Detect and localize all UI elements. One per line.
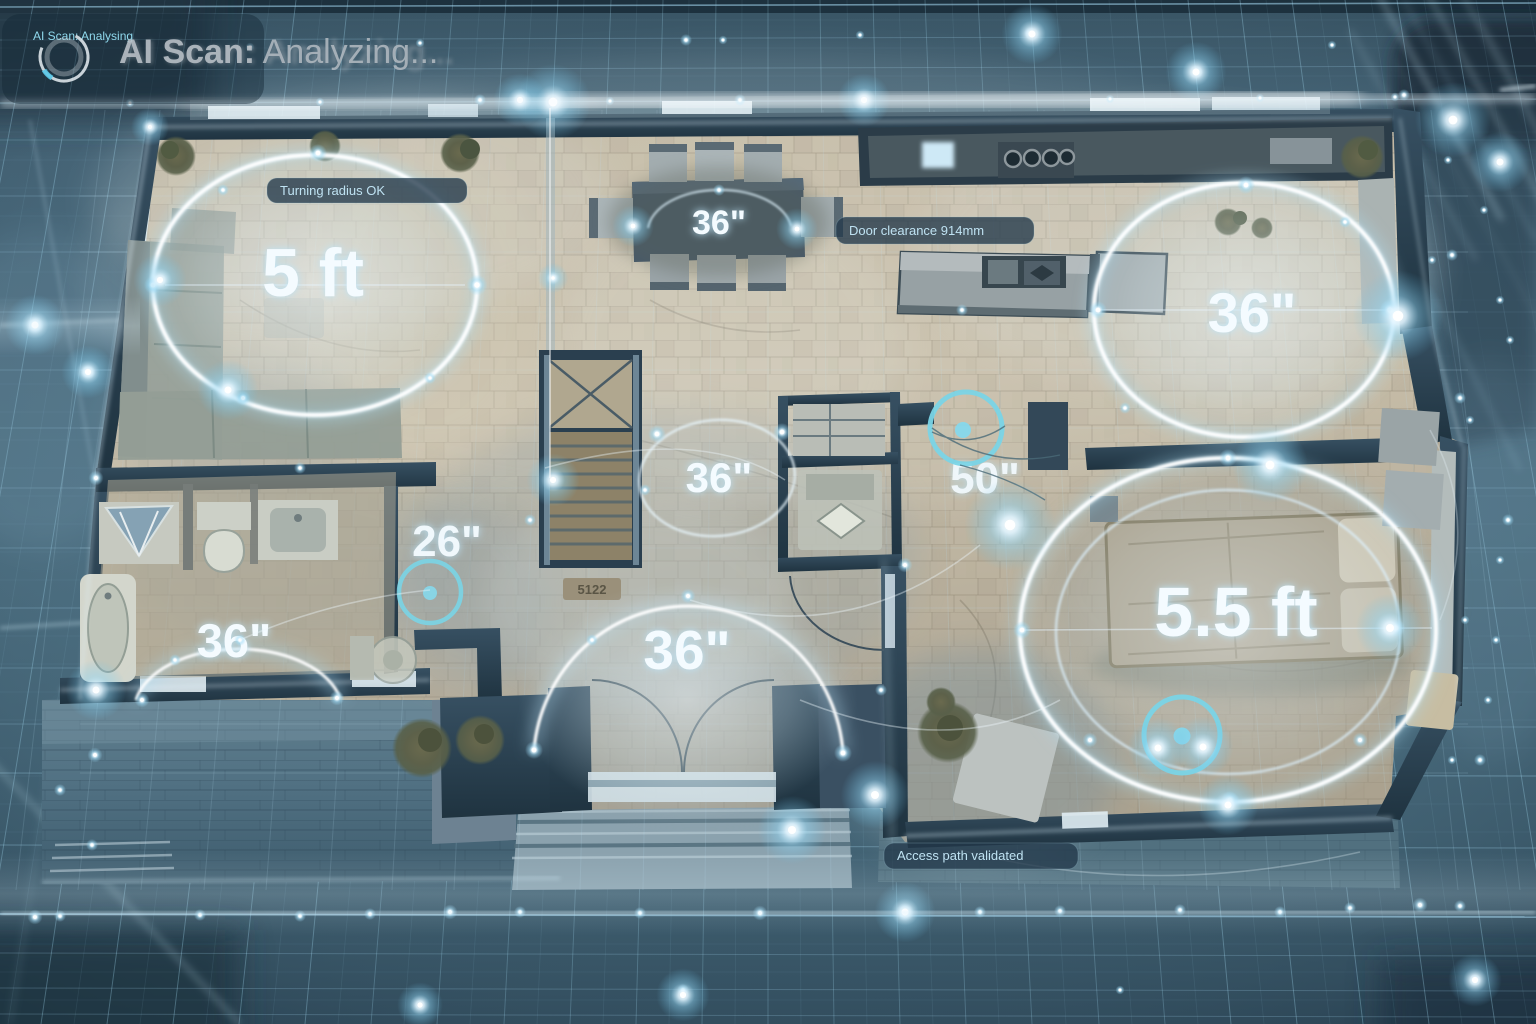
- svg-text:36": 36": [197, 614, 272, 667]
- svg-text:5122: 5122: [578, 582, 607, 597]
- svg-text:36": 36": [643, 619, 730, 681]
- svg-text:Turning radius OK: Turning radius OK: [280, 183, 385, 198]
- svg-text:Access path validated: Access path validated: [897, 848, 1023, 863]
- svg-text:36": 36": [686, 454, 753, 501]
- svg-text:36": 36": [692, 204, 746, 242]
- svg-text:36": 36": [1208, 281, 1297, 344]
- svg-text:AI Scan: Analyzing...: AI Scan: Analyzing...: [121, 34, 454, 72]
- svg-text:26": 26": [412, 517, 482, 566]
- svg-text:Door clearance 914mm: Door clearance 914mm: [849, 223, 984, 238]
- svg-text:5 ft: 5 ft: [262, 235, 364, 311]
- svg-text:5.5 ft: 5.5 ft: [1154, 573, 1317, 651]
